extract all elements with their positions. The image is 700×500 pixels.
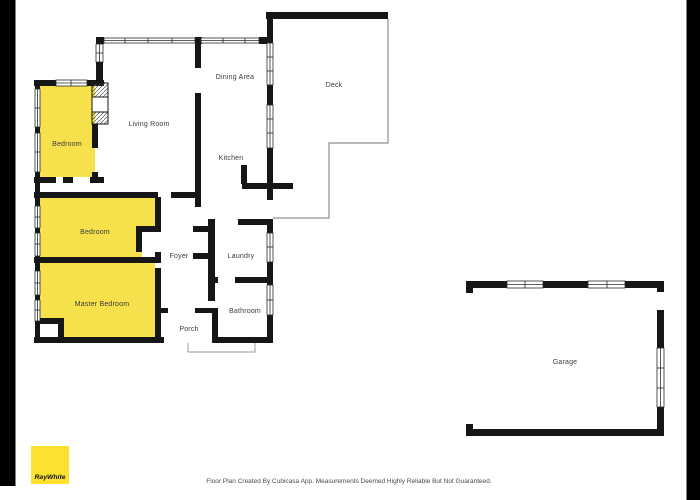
garage-windows [507, 281, 664, 407]
room-label-foyer: Foyer [170, 253, 189, 260]
left-letterbox-bar [0, 0, 16, 486]
room-label-bedroom-top: Bedroom [52, 141, 82, 148]
room-label-laundry: Laundry [228, 253, 255, 260]
room-label-dining-area: Dining Area [216, 74, 254, 81]
room-label-garage: Garage [553, 359, 578, 366]
room-label-bedroom-middle: Bedroom [80, 229, 110, 236]
alcove-cutout-master [40, 324, 60, 337]
floorplan-image: Bedroom Living Room Dining Area Kitchen … [0, 0, 700, 500]
floorplan-drawing: Bedroom Living Room Dining Area Kitchen … [0, 0, 700, 500]
room-label-porch: Porch [179, 326, 198, 333]
raywhite-logo: RayWhite [31, 446, 69, 484]
right-letterbox-bar [687, 0, 700, 500]
footer-disclaimer: Floor Plan Created By Cubicasa App. Meas… [206, 478, 492, 485]
raywhite-logo-text: RayWhite [35, 474, 66, 481]
room-label-kitchen: Kitchen [219, 155, 244, 162]
fireplace-icon [92, 83, 108, 124]
room-label-master-bedroom: Master Bedroom [75, 301, 130, 308]
room-label-living-room: Living Room [128, 121, 169, 128]
porch-step-outline [188, 343, 255, 352]
closet-cutout-bedroom-middle [142, 232, 155, 258]
room-label-bathroom: Bathroom [229, 308, 261, 315]
room-fill-bedroom-top [40, 85, 95, 177]
room-label-deck: Deck [326, 82, 343, 89]
